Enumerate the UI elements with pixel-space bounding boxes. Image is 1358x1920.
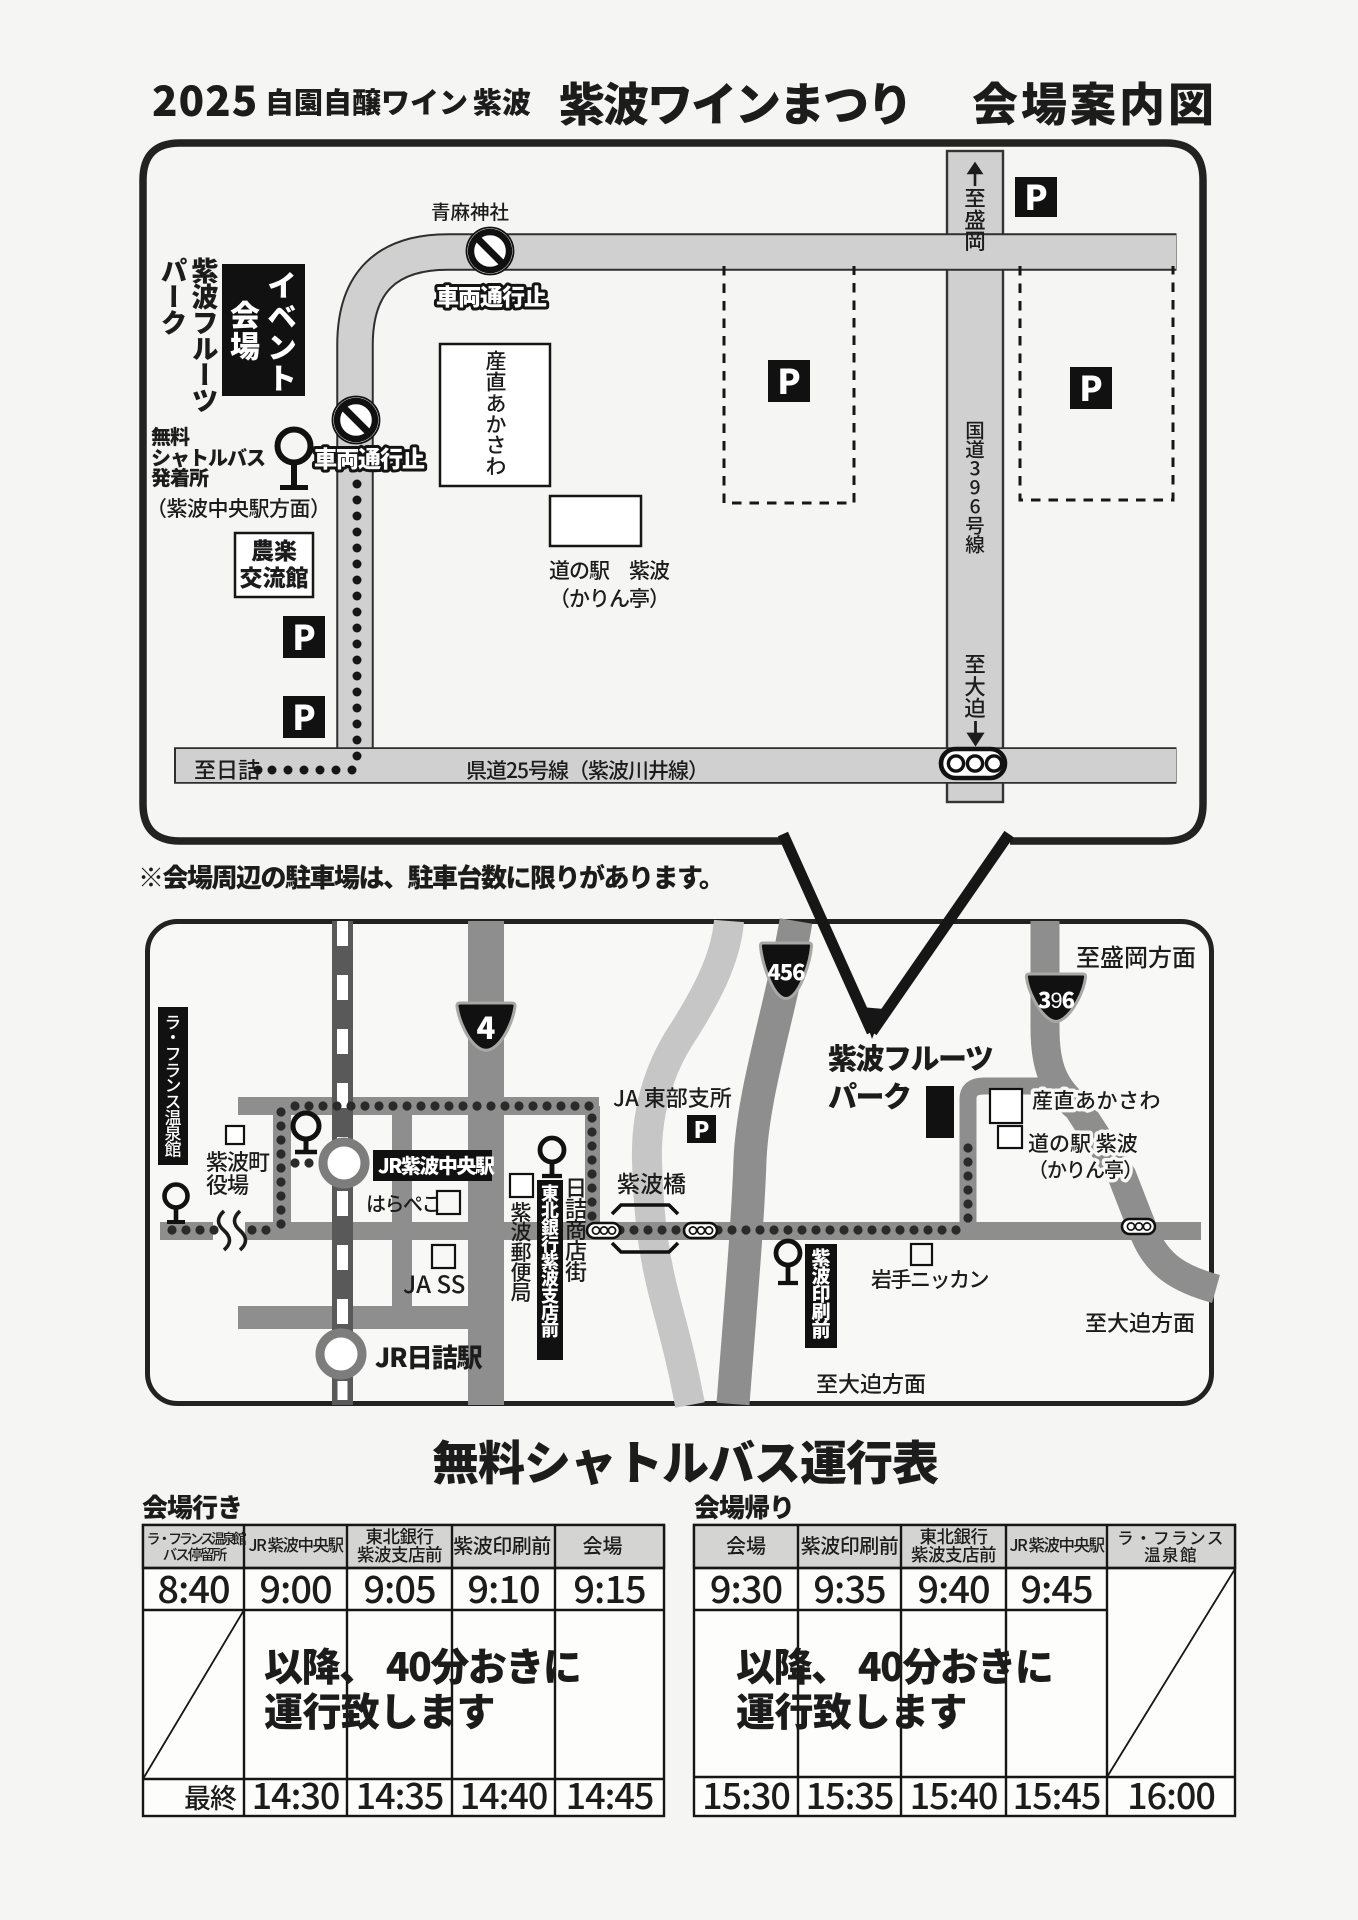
svg-text:産直あかさわ: 産直あかさわ — [481, 350, 511, 476]
svg-text:9:35: 9:35 — [813, 1559, 885, 1614]
svg-text:国道396号線: 国道396号線 — [961, 420, 990, 554]
svg-text:会場: 会場 — [726, 1530, 766, 1559]
svg-text:日詰商店街: 日詰商店街 — [560, 1176, 592, 1283]
svg-text:至盛岡方面: 至盛岡方面 — [1076, 938, 1196, 973]
svg-text:2025: 2025 — [152, 68, 258, 129]
svg-text:自園自醸ワイン: 自園自醸ワイン — [265, 80, 468, 122]
svg-text:至大迫方面: 至大迫方面 — [1085, 1306, 1195, 1338]
svg-text:産直あかさわ: 産直あかさわ — [1032, 1085, 1161, 1115]
svg-text:車両通行止: 車両通行止 — [436, 278, 547, 312]
svg-text:（かりん亭）: （かりん亭） — [1028, 1154, 1142, 1183]
svg-text:パーク: パーク — [155, 257, 194, 335]
svg-text:JR紫波中央駅: JR紫波中央駅 — [378, 1150, 495, 1179]
svg-text:会場帰り: 会場帰り — [694, 1488, 794, 1525]
svg-text:（紫波中央駅方面）: （紫波中央駅方面） — [146, 493, 331, 523]
svg-text:14:45: 14:45 — [566, 1768, 654, 1820]
svg-text:紫波ワインまつり: 紫波ワインまつり — [559, 69, 911, 135]
svg-text:16:00: 16:00 — [1127, 1768, 1215, 1820]
svg-text:P: P — [292, 611, 315, 660]
svg-text:交流館: 交流館 — [240, 559, 309, 593]
svg-text:14:35: 14:35 — [356, 1768, 444, 1820]
svg-text:最終: 最終 — [184, 1777, 237, 1816]
svg-text:JA SS: JA SS — [403, 1265, 465, 1300]
svg-text:車両通行止: 車両通行止 — [314, 440, 425, 474]
svg-text:9:10: 9:10 — [467, 1559, 539, 1614]
svg-text:JR日詰駅: JR日詰駅 — [375, 1338, 483, 1375]
svg-text:はらぺこ: はらぺこ — [366, 1188, 440, 1217]
svg-text:15:30: 15:30 — [702, 1768, 790, 1820]
svg-text:紫波郵便局: 紫波郵便局 — [506, 1201, 536, 1303]
svg-text:至大迫方面: 至大迫方面 — [816, 1367, 926, 1399]
svg-text:※会場周辺の駐車場は、駐車台数に限りがあります。: ※会場周辺の駐車場は、駐車台数に限りがあります。 — [138, 858, 723, 895]
svg-text:456: 456 — [767, 955, 805, 987]
svg-text:温泉館: 温泉館 — [1144, 1542, 1198, 1566]
svg-text:14:40: 14:40 — [460, 1768, 548, 1820]
svg-text:9:15: 9:15 — [573, 1559, 645, 1614]
svg-text:紫波橋: 紫波橋 — [617, 1165, 686, 1199]
svg-text:396: 396 — [1038, 983, 1075, 1015]
svg-text:9:30: 9:30 — [710, 1559, 782, 1614]
svg-text:岩手ニッカン: 岩手ニッカン — [871, 1264, 988, 1294]
svg-text:至大迫: 至大迫 — [960, 653, 991, 719]
svg-text:8:40: 8:40 — [157, 1559, 229, 1614]
svg-text:9:00: 9:00 — [259, 1559, 331, 1614]
svg-text:9:40: 9:40 — [917, 1559, 989, 1614]
svg-text:15:45: 15:45 — [1013, 1768, 1101, 1820]
svg-text:無料シャトルバス運行表: 無料シャトルバス運行表 — [432, 1425, 939, 1494]
svg-text:JR 紫波中央駅: JR 紫波中央駅 — [248, 1532, 344, 1556]
svg-text:4: 4 — [477, 1003, 496, 1048]
svg-text:9:45: 9:45 — [1020, 1559, 1092, 1614]
svg-text:パーク: パーク — [828, 1074, 911, 1116]
svg-text:P: P — [694, 1111, 710, 1145]
svg-text:9:05: 9:05 — [363, 1559, 435, 1614]
svg-text:役場: 役場 — [206, 1168, 249, 1200]
svg-text:紫波フルーツ: 紫波フルーツ — [828, 1036, 993, 1078]
svg-text:会場行き: 会場行き — [142, 1488, 242, 1525]
svg-text:ラ・フランス温泉館: ラ・フランス温泉館 — [161, 1012, 186, 1158]
svg-text:紫波印刷前: 紫波印刷前 — [453, 1530, 551, 1559]
svg-text:（かりん亭）: （かりん亭） — [549, 583, 669, 613]
svg-text:至日詰: 至日詰 — [194, 753, 260, 785]
svg-text:P: P — [1079, 362, 1102, 411]
svg-text:発着所: 発着所 — [151, 462, 209, 491]
svg-text:会場: 会場 — [223, 300, 267, 362]
svg-text:県道25号線（紫波川井線）: 県道25号線（紫波川井線） — [466, 755, 708, 785]
svg-text:至盛岡: 至盛岡 — [960, 187, 991, 252]
svg-text:JR 紫波中央駅: JR 紫波中央駅 — [1009, 1532, 1105, 1556]
svg-text:15:35: 15:35 — [806, 1768, 894, 1820]
svg-text:P: P — [292, 691, 315, 740]
svg-text:15:40: 15:40 — [910, 1768, 998, 1820]
svg-text:青麻神社: 青麻神社 — [431, 196, 509, 225]
svg-text:14:30: 14:30 — [252, 1768, 340, 1820]
svg-text:道の駅 紫波: 道の駅 紫波 — [549, 555, 670, 585]
svg-text:会場案内図: 会場案内図 — [972, 69, 1217, 135]
svg-text:会場: 会場 — [583, 1530, 623, 1559]
svg-text:紫波印刷前: 紫波印刷前 — [801, 1530, 899, 1559]
svg-text:紫波印刷前: 紫波印刷前 — [808, 1248, 835, 1340]
svg-text:P: P — [777, 355, 800, 404]
svg-text:P: P — [1024, 171, 1047, 220]
svg-text:紫波: 紫波 — [473, 80, 531, 122]
svg-text:運行致します: 運行致します — [264, 1682, 495, 1738]
svg-text:JA 東部支所: JA 東部支所 — [613, 1081, 732, 1113]
svg-text:運行致します: 運行致します — [736, 1682, 967, 1738]
